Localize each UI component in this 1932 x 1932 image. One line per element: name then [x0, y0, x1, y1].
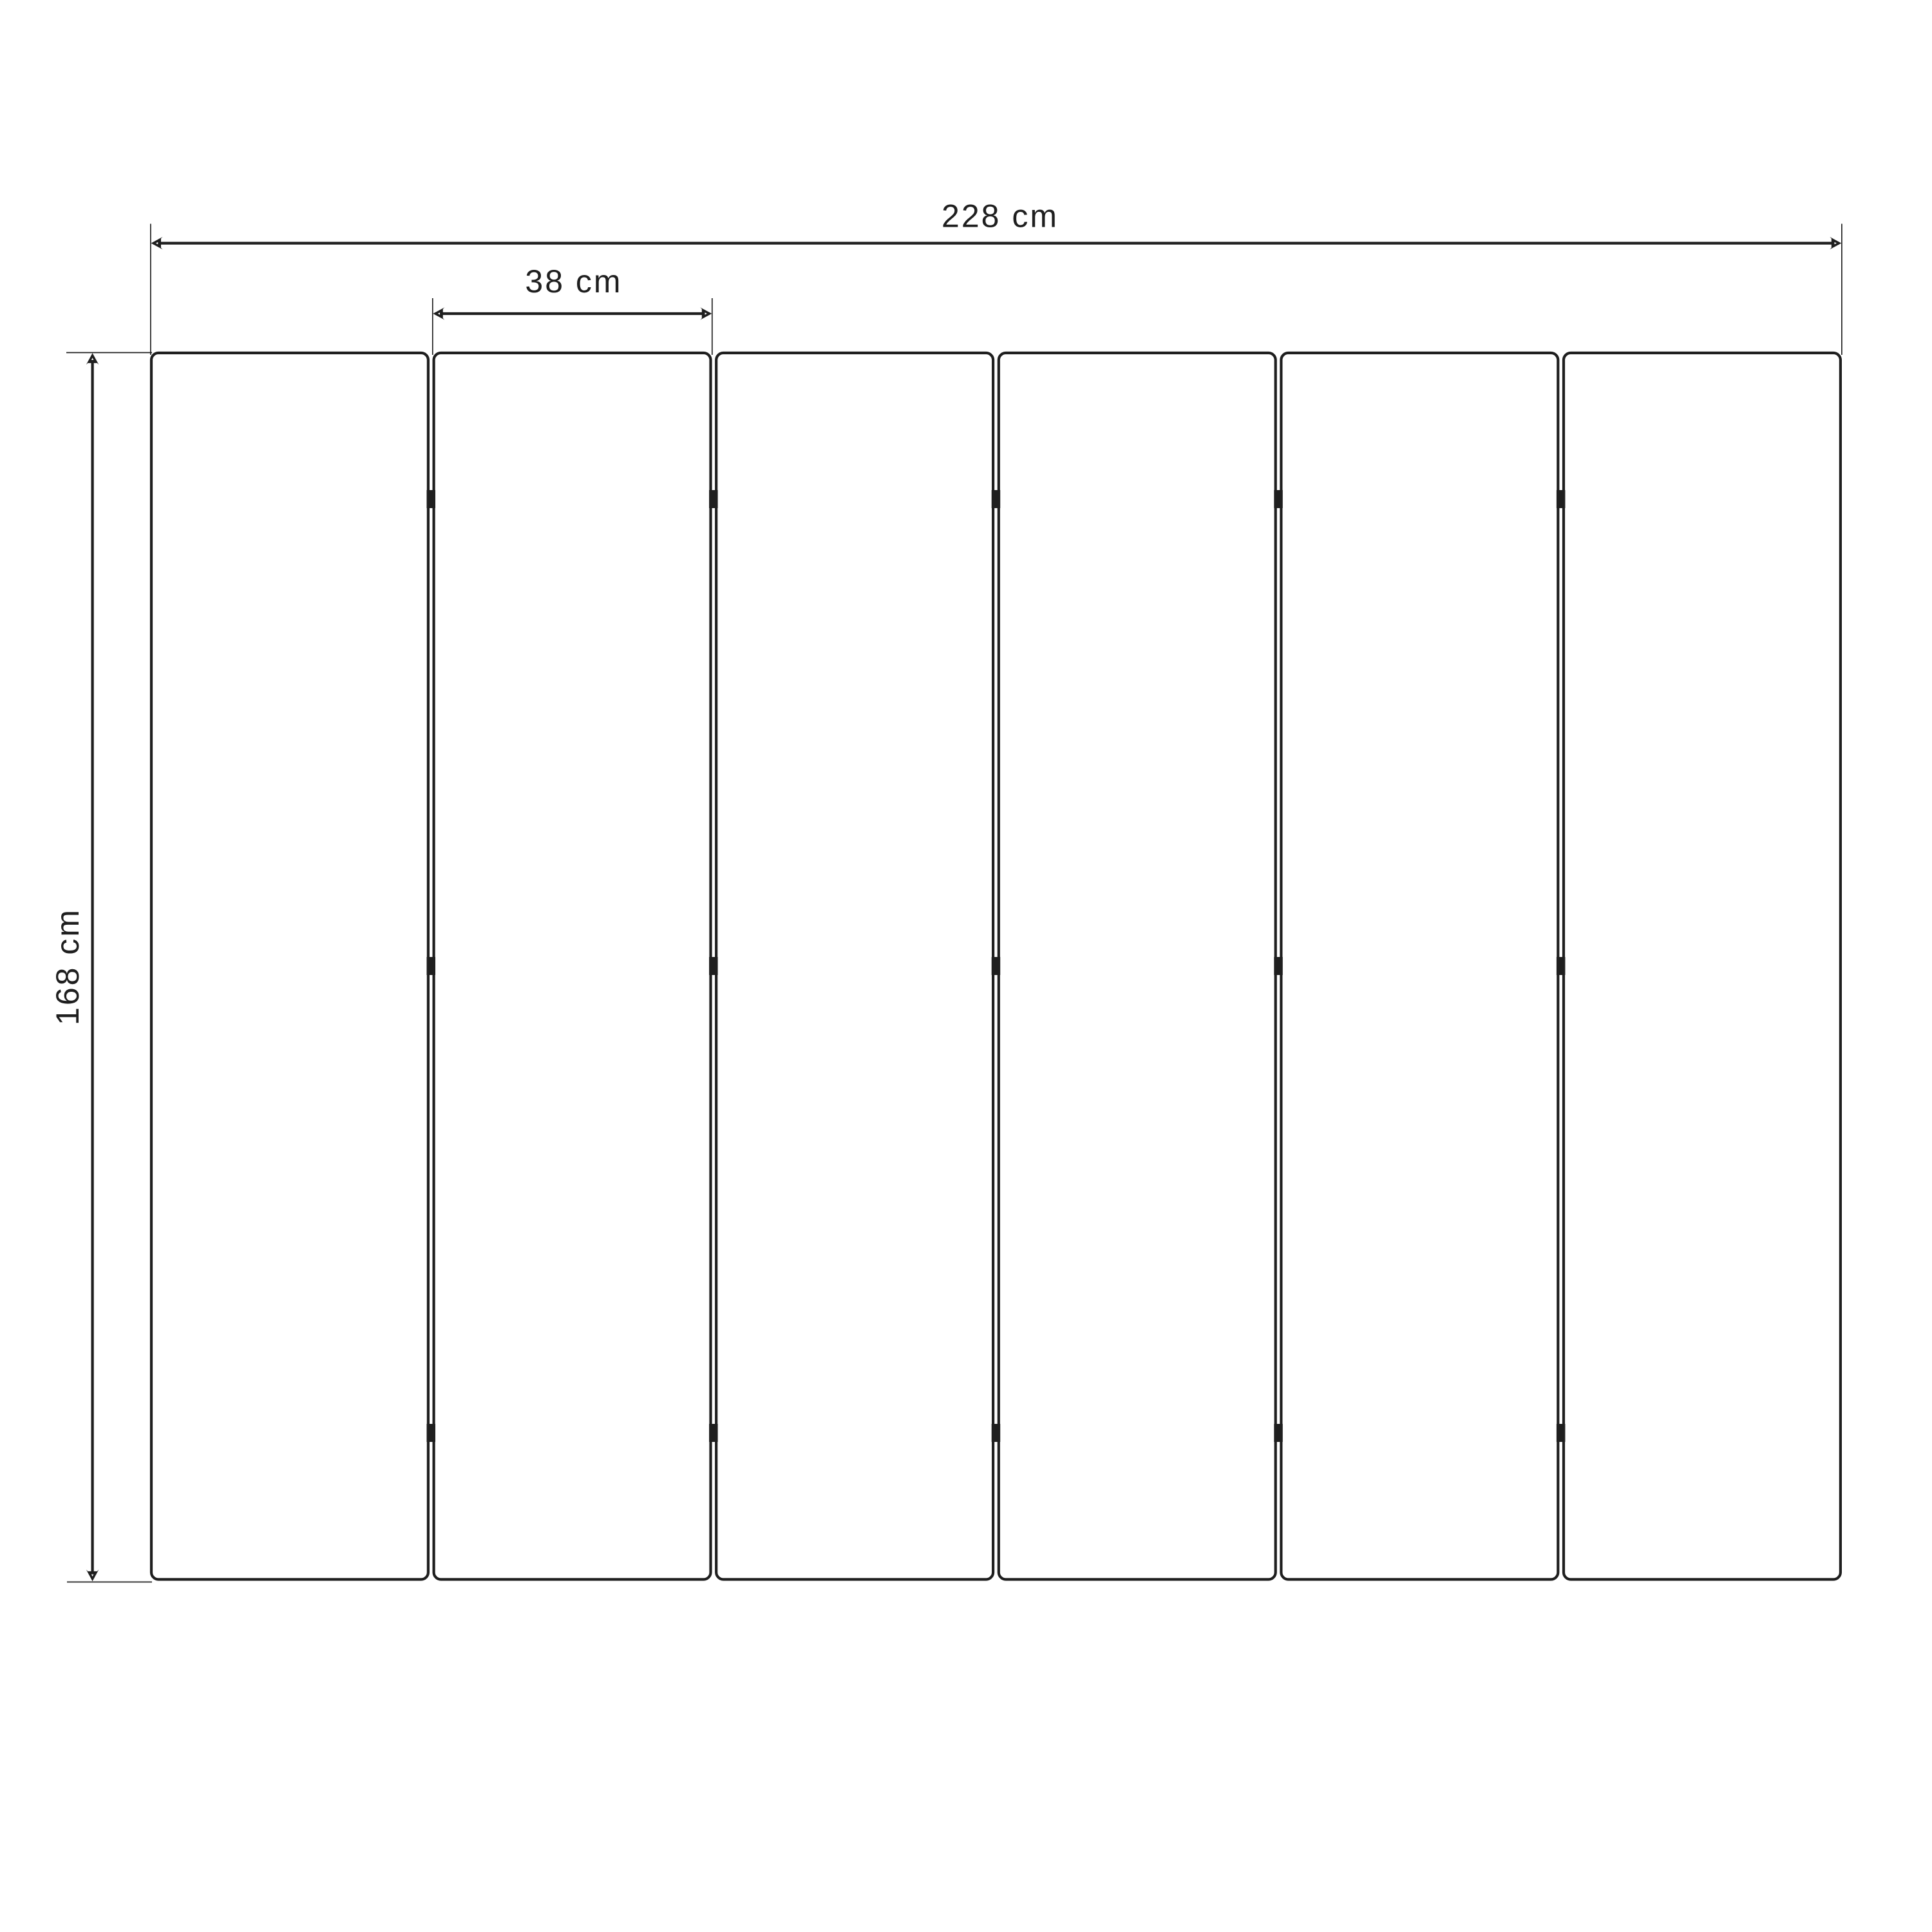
svg-text:38 cm: 38 cm: [525, 263, 622, 299]
svg-text:228 cm: 228 cm: [942, 198, 1059, 234]
svg-text:168 cm: 168 cm: [50, 908, 86, 1025]
